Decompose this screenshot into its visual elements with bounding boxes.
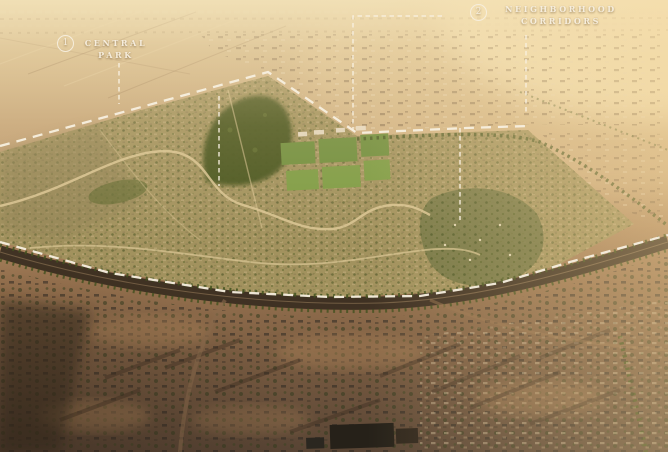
- annotation-layer: [0, 0, 668, 452]
- site-boundary-bottom: [0, 235, 668, 297]
- label-central-park: CENTRAL PARK: [82, 38, 150, 61]
- leader-corridors-1: [353, 16, 442, 131]
- marker-2-circle: 2: [470, 4, 487, 21]
- label-neighborhood-corridors: NEIGHBORHOOD CORRIDORS: [498, 4, 624, 27]
- label-neighborhood-corridors-line2: CORRIDORS: [498, 16, 624, 28]
- label-neighborhood-corridors-line1: NEIGHBORHOOD: [498, 4, 624, 16]
- marker-1-circle: 1: [57, 35, 74, 52]
- label-central-park-line2: PARK: [82, 50, 150, 62]
- site-boundary-top: [0, 72, 528, 146]
- label-central-park-line1: CENTRAL: [82, 38, 150, 50]
- masterplan-aerial-render: 1 CENTRAL PARK 2 NEIGHBORHOOD CORRIDORS: [0, 0, 668, 452]
